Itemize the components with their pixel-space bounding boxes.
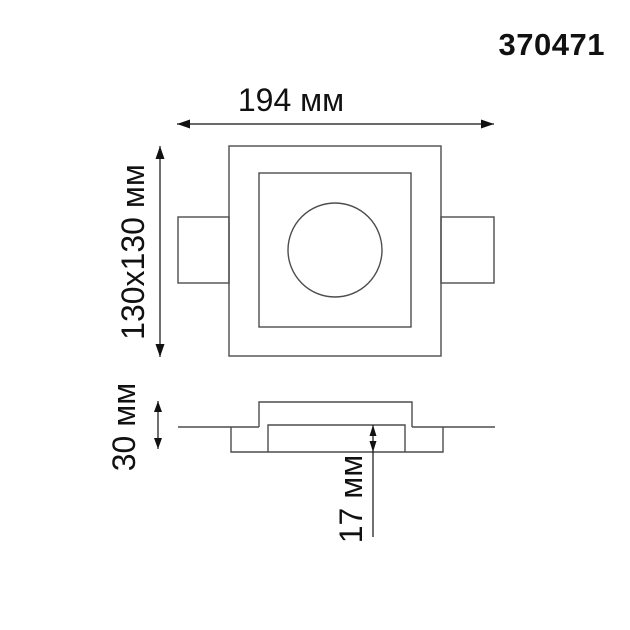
arrow-down-icon: [370, 441, 377, 452]
top-view: [178, 146, 494, 356]
technical-drawing: 370471 194 мм 130x130 мм 30 мм 17 мм: [0, 0, 630, 630]
height-dimension-arrow: [154, 401, 162, 449]
article-number: 370471: [455, 27, 605, 63]
arrow-up-icon: [154, 401, 162, 412]
dimension-width-label: 194 мм: [171, 83, 411, 117]
arrow-up-icon: [370, 425, 377, 436]
depth-dimension-arrow: [370, 425, 377, 537]
dimension-height-label: 30 мм: [107, 357, 141, 497]
face-dimension-arrow: [156, 146, 165, 357]
recessed-crown-profile: [259, 402, 412, 427]
right-mount-tab: [441, 217, 494, 283]
inner-square-recess: [259, 173, 411, 327]
dimension-depth-label: 17 мм: [334, 429, 368, 569]
dimension-face-label: 130x130 мм: [116, 137, 150, 367]
arrow-up-icon: [156, 146, 165, 159]
width-dimension-arrow: [177, 120, 494, 129]
arrow-right-icon: [481, 120, 494, 129]
arrow-left-icon: [177, 120, 190, 129]
left-mount-tab: [178, 217, 229, 283]
outer-square-frame: [229, 146, 441, 356]
arrow-down-icon: [154, 438, 162, 449]
arrow-down-icon: [156, 344, 165, 357]
lamp-opening-circle: [288, 203, 382, 297]
